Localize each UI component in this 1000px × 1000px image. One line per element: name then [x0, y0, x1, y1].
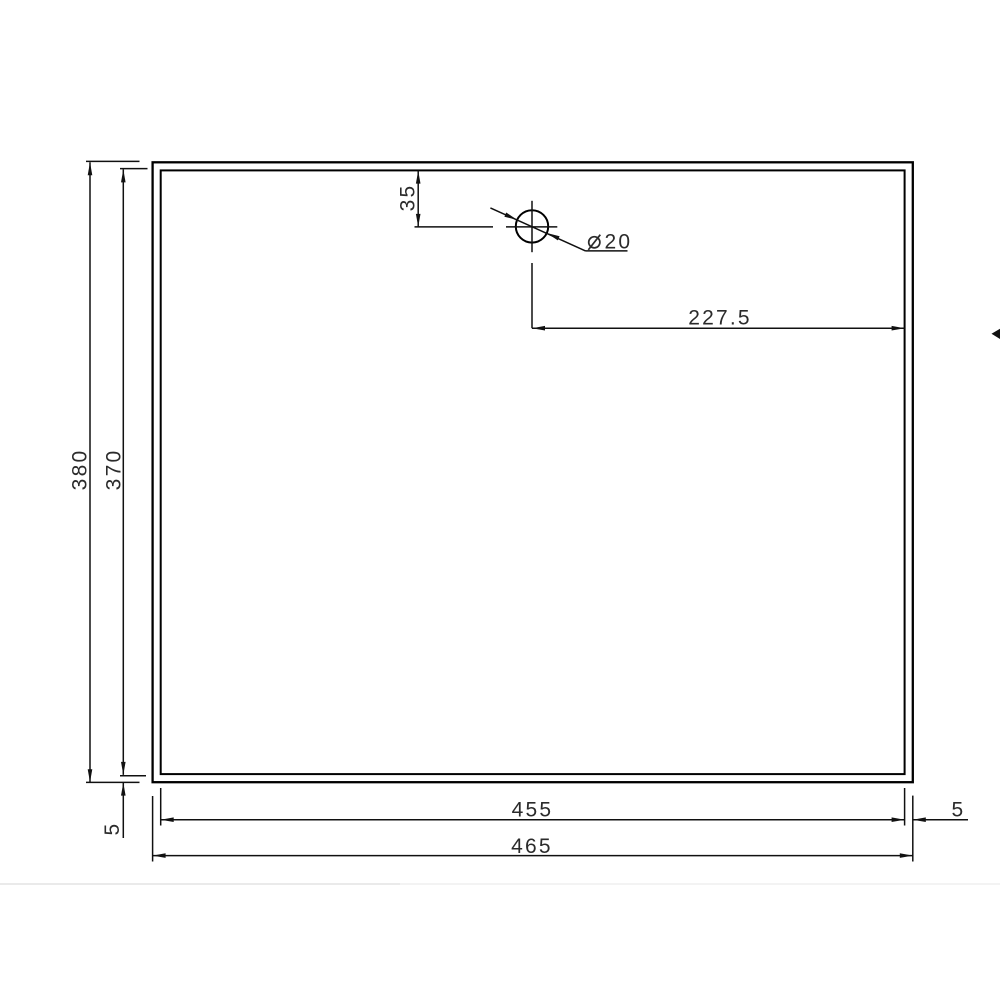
svg-text:35: 35: [397, 184, 420, 212]
svg-text:5: 5: [952, 799, 966, 822]
svg-text:20: 20: [605, 231, 633, 254]
svg-text:370: 370: [103, 449, 126, 491]
svg-text:465: 465: [511, 835, 553, 858]
svg-text:5: 5: [101, 822, 124, 836]
svg-text:380: 380: [69, 449, 92, 491]
svg-text:227.5: 227.5: [688, 307, 752, 330]
svg-text:455: 455: [512, 799, 554, 822]
